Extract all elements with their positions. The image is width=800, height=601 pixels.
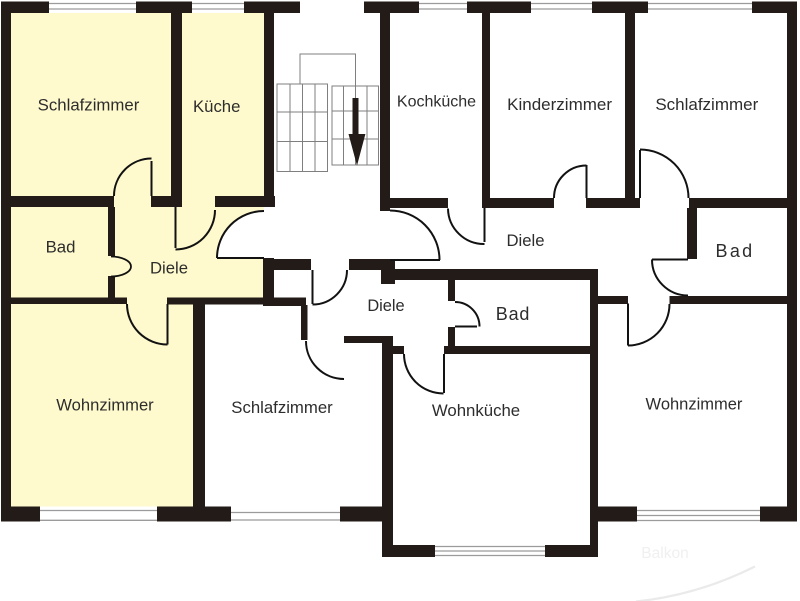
svg-text:Balkon: Balkon [641, 545, 688, 562]
svg-text:Kochküche: Kochküche [397, 94, 476, 111]
svg-text:Diele: Diele [367, 297, 404, 315]
svg-text:Diele: Diele [506, 231, 544, 250]
svg-text:Bad: Bad [716, 241, 755, 261]
svg-text:Küche: Küche [193, 97, 240, 116]
svg-text:Diele: Diele [150, 259, 188, 278]
svg-text:Bad: Bad [496, 304, 530, 324]
svg-text:Schlafzimmer: Schlafzimmer [655, 95, 758, 114]
svg-text:Bad: Bad [46, 238, 76, 257]
svg-text:Wohnzimmer: Wohnzimmer [56, 396, 154, 415]
svg-text:Kinderzimmer: Kinderzimmer [507, 95, 612, 114]
svg-text:Schlafzimmer: Schlafzimmer [231, 398, 333, 417]
svg-text:Schlafzimmer: Schlafzimmer [38, 96, 140, 115]
svg-text:Wohnküche: Wohnküche [432, 401, 520, 420]
svg-text:Wohnzimmer: Wohnzimmer [646, 396, 743, 414]
